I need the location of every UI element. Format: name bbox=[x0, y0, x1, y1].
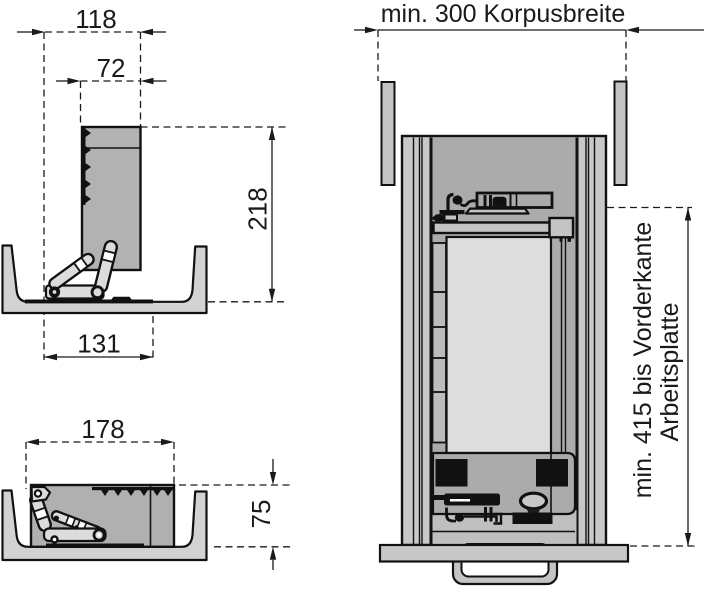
svg-text:min. 300 Korpusbreite: min. 300 Korpusbreite bbox=[381, 0, 626, 28]
svg-text:72: 72 bbox=[97, 53, 126, 83]
svg-text:Arbeitsplatte: Arbeitsplatte bbox=[656, 303, 684, 442]
svg-text:min. 415 bis Vorderkante: min. 415 bis Vorderkante bbox=[629, 222, 657, 499]
svg-text:131: 131 bbox=[77, 329, 120, 359]
svg-text:75: 75 bbox=[246, 500, 276, 529]
svg-text:118: 118 bbox=[75, 4, 116, 34]
svg-text:178: 178 bbox=[81, 414, 124, 444]
svg-text:218: 218 bbox=[243, 187, 273, 230]
